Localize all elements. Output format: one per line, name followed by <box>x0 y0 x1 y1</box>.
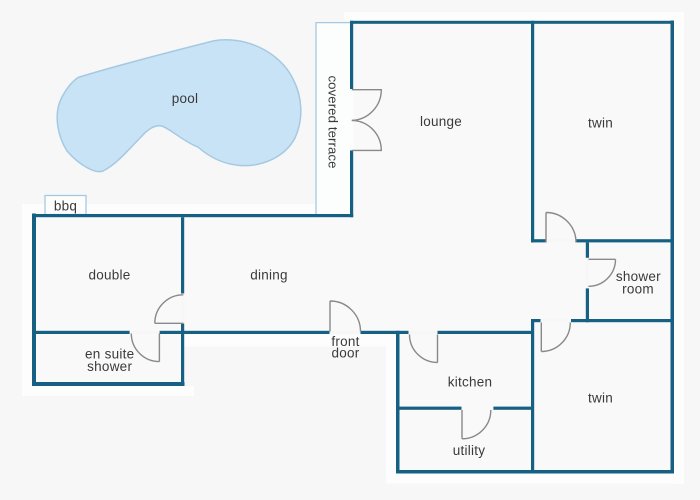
svg-text:twin: twin <box>588 391 613 406</box>
svg-text:room: room <box>622 282 654 297</box>
svg-text:double: double <box>88 268 130 283</box>
svg-text:utility: utility <box>453 443 486 458</box>
svg-text:covered terrace: covered terrace <box>326 75 341 168</box>
svg-text:lounge: lounge <box>420 114 462 129</box>
svg-text:twin: twin <box>588 116 613 131</box>
svg-text:kitchen: kitchen <box>448 375 493 390</box>
svg-text:pool: pool <box>172 91 199 106</box>
svg-text:dining: dining <box>250 268 288 283</box>
svg-text:door: door <box>331 346 359 361</box>
svg-text:shower: shower <box>87 359 132 374</box>
svg-text:bbq: bbq <box>54 199 77 214</box>
